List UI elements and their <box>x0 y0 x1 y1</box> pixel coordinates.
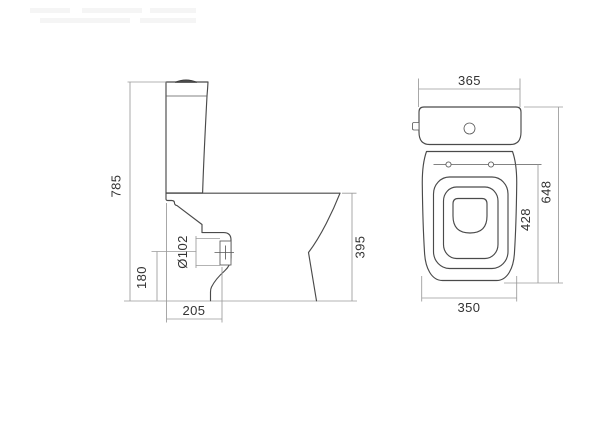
cistern-side-outline <box>166 82 208 193</box>
dim-outlet-diameter-label: Ø102 <box>175 235 190 268</box>
side-view: 785 180 Ø102 205 395 <box>109 80 368 323</box>
technical-drawing-page: 785 180 Ø102 205 395 365 <box>0 0 600 424</box>
dim-overall-height-label: 785 <box>109 175 124 198</box>
toilet-dimension-drawing: 785 180 Ø102 205 395 365 <box>0 0 600 424</box>
dim-outlet-setout-label: 205 <box>183 303 206 318</box>
faint-watermark <box>30 8 196 23</box>
dim-outlet-height-label: 180 <box>134 266 149 289</box>
dim-hinge-height-label: 428 <box>518 208 533 231</box>
dim-cistern-width-label: 365 <box>458 73 481 88</box>
bowl-front-profile <box>309 193 341 301</box>
dim-base-width-label: 350 <box>458 300 481 315</box>
dim-overall-height-front-label: 648 <box>539 181 554 204</box>
front-view: 365 648 428 350 <box>413 73 564 315</box>
dim-hinge-height: 428 <box>518 165 538 284</box>
dim-outlet-diameter: Ø102 <box>175 235 220 268</box>
hinge-hole-right <box>488 162 493 167</box>
flush-button-side <box>175 80 197 82</box>
dim-rim-height: 395 <box>342 193 368 301</box>
inlet-tab <box>413 123 420 131</box>
hinge-hole-left <box>446 162 451 167</box>
dim-base-width: 350 <box>422 276 517 315</box>
flush-button-front <box>464 123 475 134</box>
dim-cistern-width: 365 <box>419 73 521 107</box>
dim-rim-height-label: 395 <box>353 236 368 259</box>
